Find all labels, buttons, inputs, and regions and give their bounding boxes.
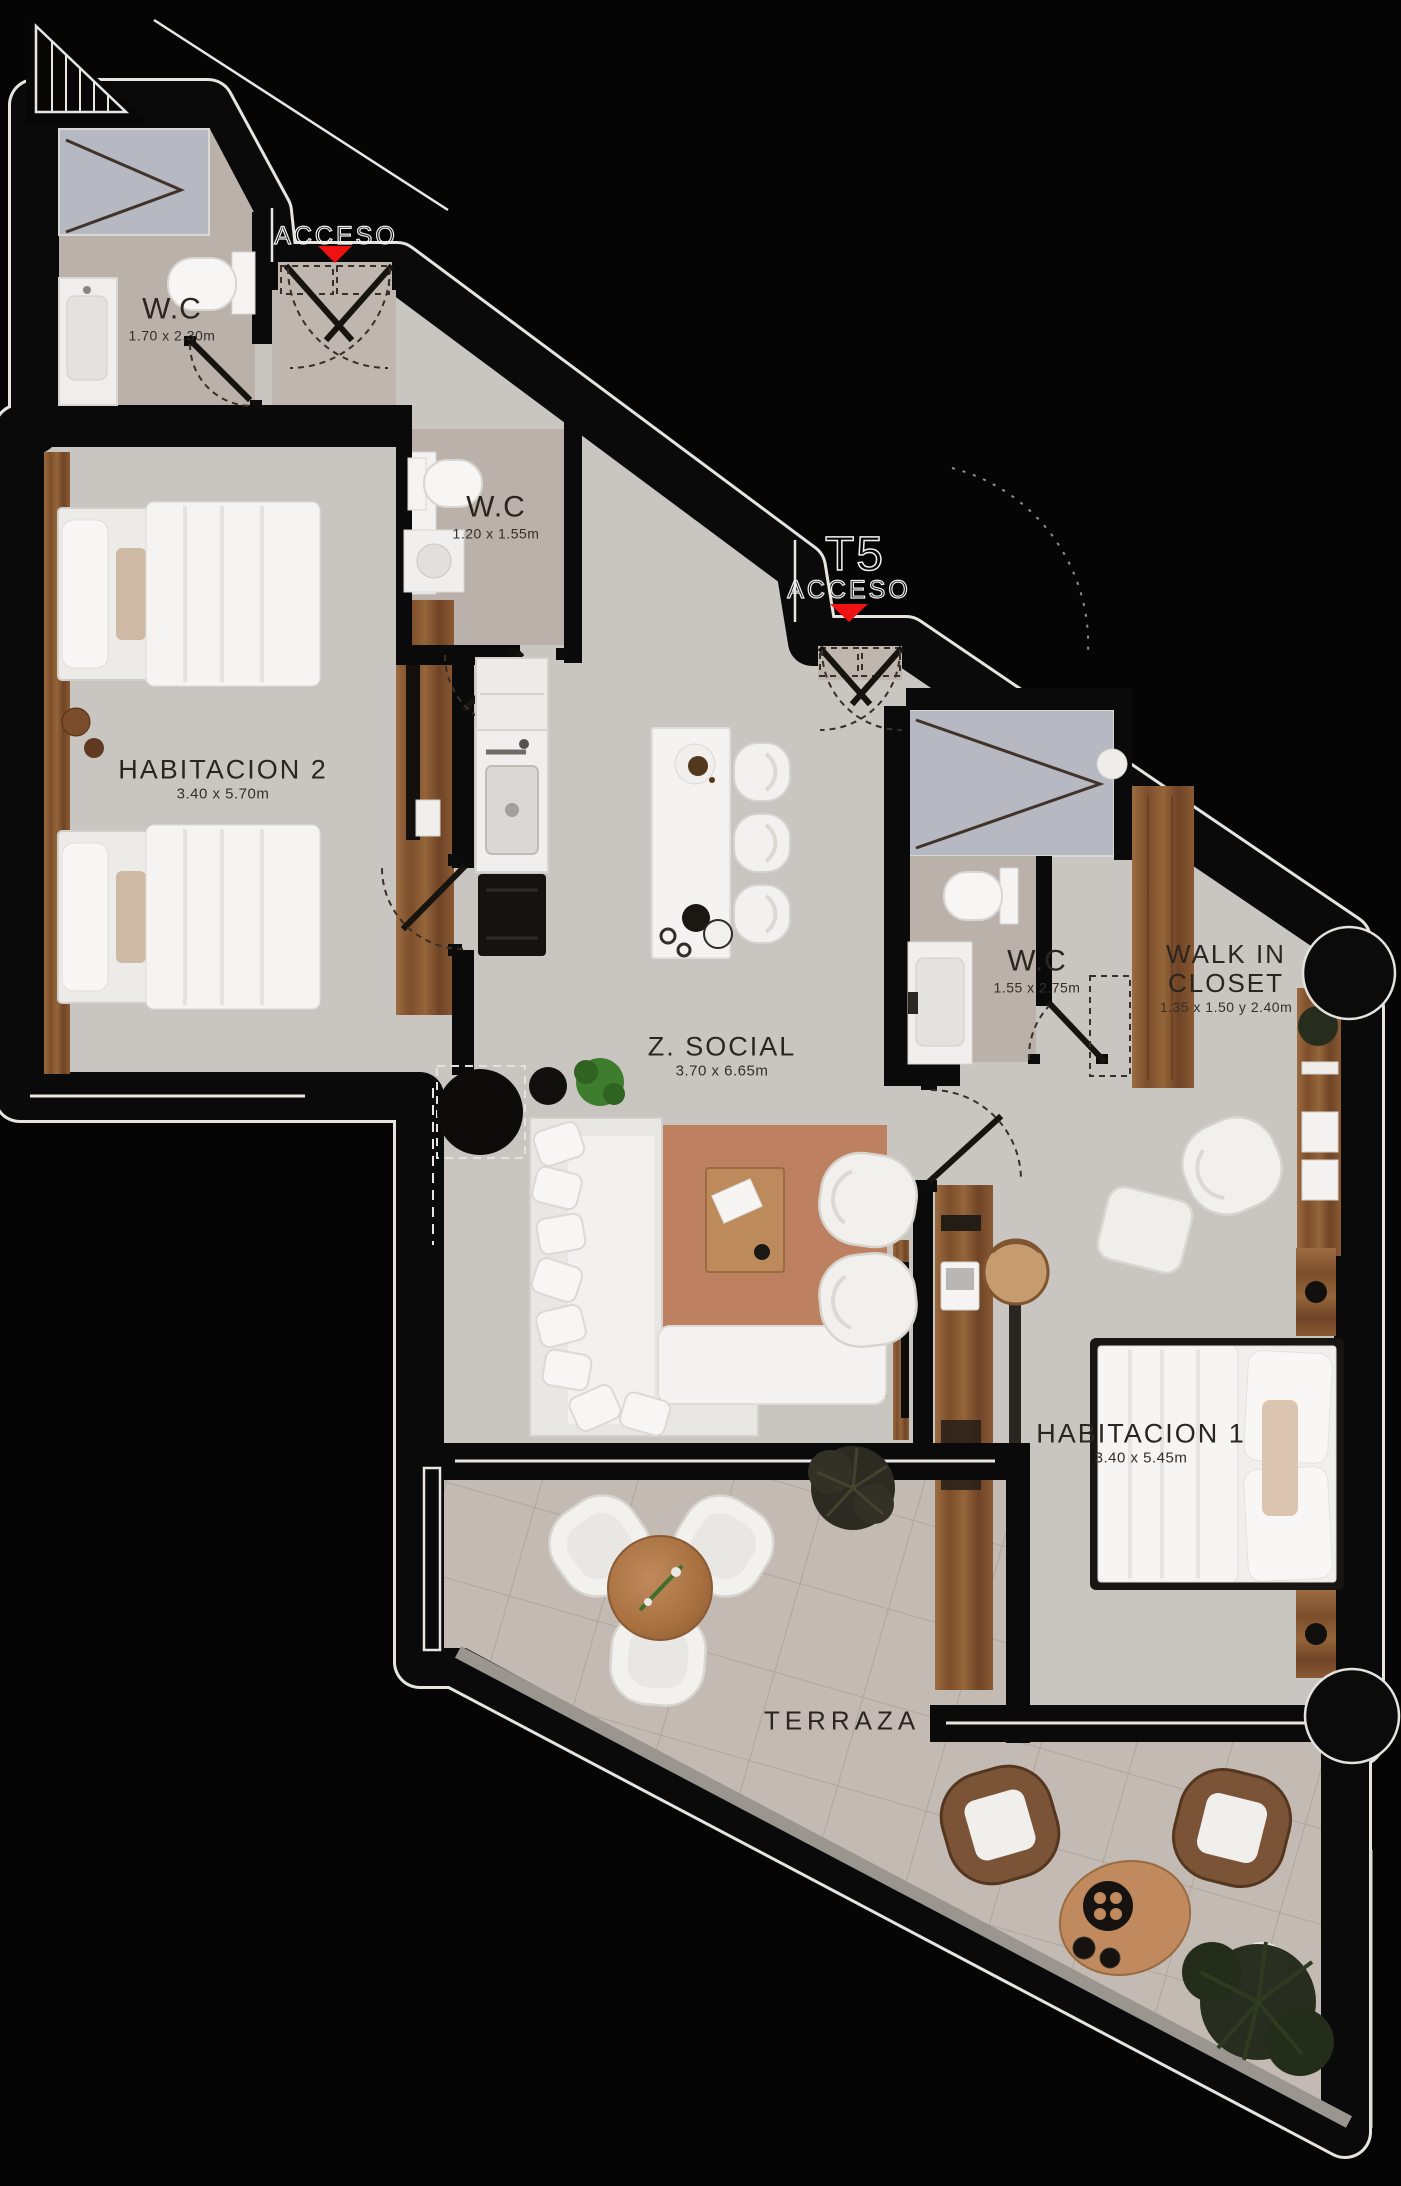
room-label-hab1: HABITACION 1 3.40 x 5.45m	[1036, 1418, 1246, 1467]
room-label-zsocial: Z. SOCIAL 3.70 x 6.65m	[648, 1031, 797, 1080]
room-label-wc3: W.C 1.55 x 2.75m	[994, 944, 1081, 995]
kitchen-counter	[476, 658, 548, 956]
unit-label: T5	[825, 528, 885, 581]
bed-hab2-2	[58, 825, 320, 1009]
walkin-wardrobe	[1132, 786, 1194, 1088]
room-label-wc2: W.C 1.20 x 1.55m	[453, 490, 540, 541]
room-dims: 1.70 x 2.30m	[129, 328, 216, 344]
room-label-walkin: WALK IN CLOSET 1.35 x 1.50 y 2.40m	[1160, 940, 1292, 1016]
coffee-table	[706, 1168, 784, 1272]
dining-table	[652, 728, 732, 958]
room-title: HABITACION 2	[118, 754, 328, 784]
room-dims: 3.40 x 5.45m	[1036, 1451, 1246, 1468]
room-label-wc1: W.C 1.70 x 2.30m	[129, 292, 216, 343]
walkin-shelf	[1297, 988, 1341, 1256]
room-dims: 1.20 x 1.55m	[453, 526, 540, 542]
room-title-2: CLOSET	[1160, 969, 1292, 998]
room-title: Z. SOCIAL	[648, 1031, 797, 1061]
room-dims: 1.35 x 1.50 y 2.40m	[1160, 1000, 1292, 1016]
room-title: TERRAZA	[764, 1706, 920, 1735]
room-title: W.C	[453, 490, 540, 524]
room-label-terraza: TERRAZA	[764, 1706, 920, 1735]
room-title: HABITACION 1	[1036, 1418, 1246, 1448]
room-title: WALK IN	[1160, 940, 1292, 969]
room-dims: 3.40 x 5.70m	[118, 787, 328, 804]
room-title: W.C	[994, 944, 1081, 978]
room-label-hab2: HABITACION 2 3.40 x 5.70m	[118, 754, 328, 803]
floorplan-stage: ACCESO T5 ACCESO W.C 1.70 x 2.30m W.C 1.…	[0, 0, 1401, 2186]
desk-chair	[984, 1240, 1048, 1304]
column-1	[1303, 927, 1395, 1019]
bed-hab2-1	[58, 502, 320, 686]
acceso-unit-label: ACCESO	[787, 576, 911, 604]
dining-chairs	[734, 743, 790, 943]
acceso-top-label: ACCESO	[274, 222, 398, 250]
room-dims: 3.70 x 6.65m	[648, 1064, 797, 1081]
stair-hatch	[26, 16, 150, 124]
room-title: W.C	[129, 292, 216, 326]
column-2	[1305, 1669, 1399, 1763]
room-dims: 1.55 x 2.75m	[994, 980, 1081, 996]
